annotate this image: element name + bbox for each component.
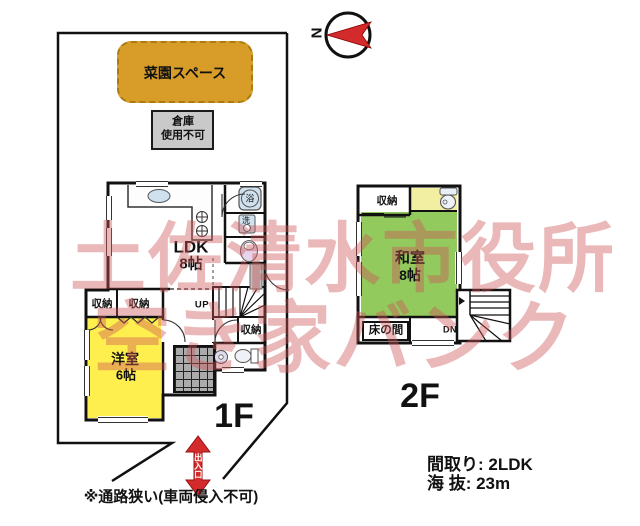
kitchen-sink <box>148 190 170 203</box>
ldk-room-label: LDK <box>174 239 209 256</box>
elevation-info: 海 抜: 23m <box>427 474 533 493</box>
floor1-label: 1F <box>214 399 254 433</box>
toilet-1f <box>241 241 258 262</box>
closet-label-2f: 収納 <box>377 196 398 207</box>
stairs-down-label: DN <box>443 326 457 335</box>
floor2-label: 2F <box>400 379 440 413</box>
genkan-tile-floor <box>173 345 215 393</box>
warehouse-unusable-label: 使用不可 <box>161 131 205 142</box>
wash-label: 洗 <box>242 217 250 225</box>
yoshitsu-room-size: 6帖 <box>116 369 136 382</box>
closet-label-1: 収納 <box>92 299 113 310</box>
washitsu-room-size: 8帖 <box>399 268 421 282</box>
floor-plan-page: 菜園スペース 倉庫 使用不可 N LDK 8帖 収納 収納 収納 UP 浴 洗 … <box>0 0 640 526</box>
tokonoma-label: 床の間 <box>369 325 404 337</box>
closet-label-2: 収納 <box>129 299 150 310</box>
layout-info: 間取り: 2LDK <box>427 455 533 474</box>
yoshitsu-room-label: 洋室 <box>111 352 139 366</box>
compass-north-label: N <box>310 28 325 39</box>
path-note: ※通路狭い(車両侵入不可) <box>84 490 259 505</box>
building-2f <box>355 186 510 346</box>
washitsu-room-label: 和室 <box>395 251 425 266</box>
property-info: 間取り: 2LDK 海 抜: 23m <box>427 455 533 493</box>
toilet-2f <box>440 188 457 209</box>
ldk-room-size: 8帖 <box>179 257 202 272</box>
entrance-exit-label: 出入口 <box>194 453 203 479</box>
closet-label-3: 収納 <box>241 325 262 336</box>
garden-space-label: 菜園スペース <box>144 66 226 80</box>
compass-icon <box>326 13 371 57</box>
stairs-up-label: UP <box>195 300 209 310</box>
bath-label: 浴 <box>245 195 254 204</box>
entrance-step <box>250 264 262 289</box>
plan-drawing <box>0 0 640 526</box>
warehouse-label: 倉庫 <box>172 117 194 128</box>
